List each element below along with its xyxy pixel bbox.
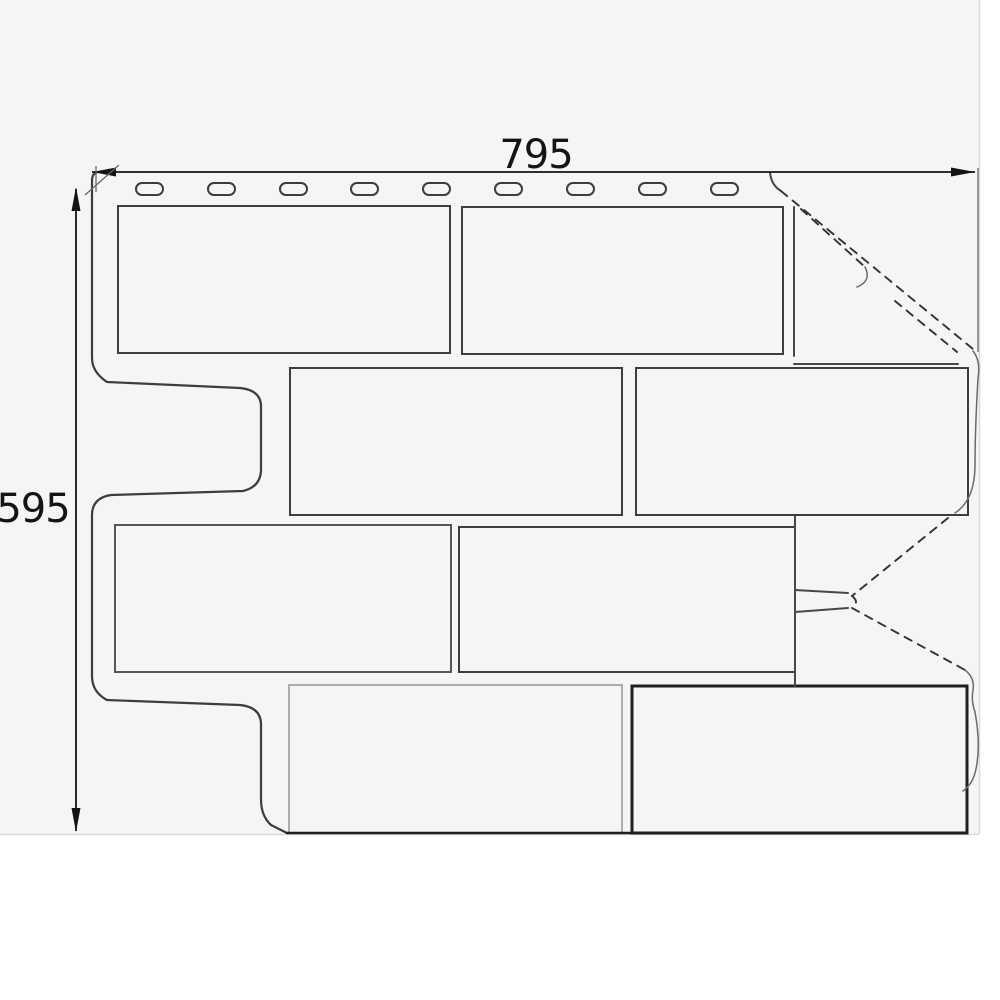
drawing-canvas: 795 595	[0, 0, 1000, 1000]
width-dimension-label: 795	[499, 132, 572, 178]
panel-technical-drawing: 795 595	[0, 0, 1000, 1000]
paper-background	[0, 0, 979, 834]
height-dimension-label: 595	[0, 486, 70, 532]
